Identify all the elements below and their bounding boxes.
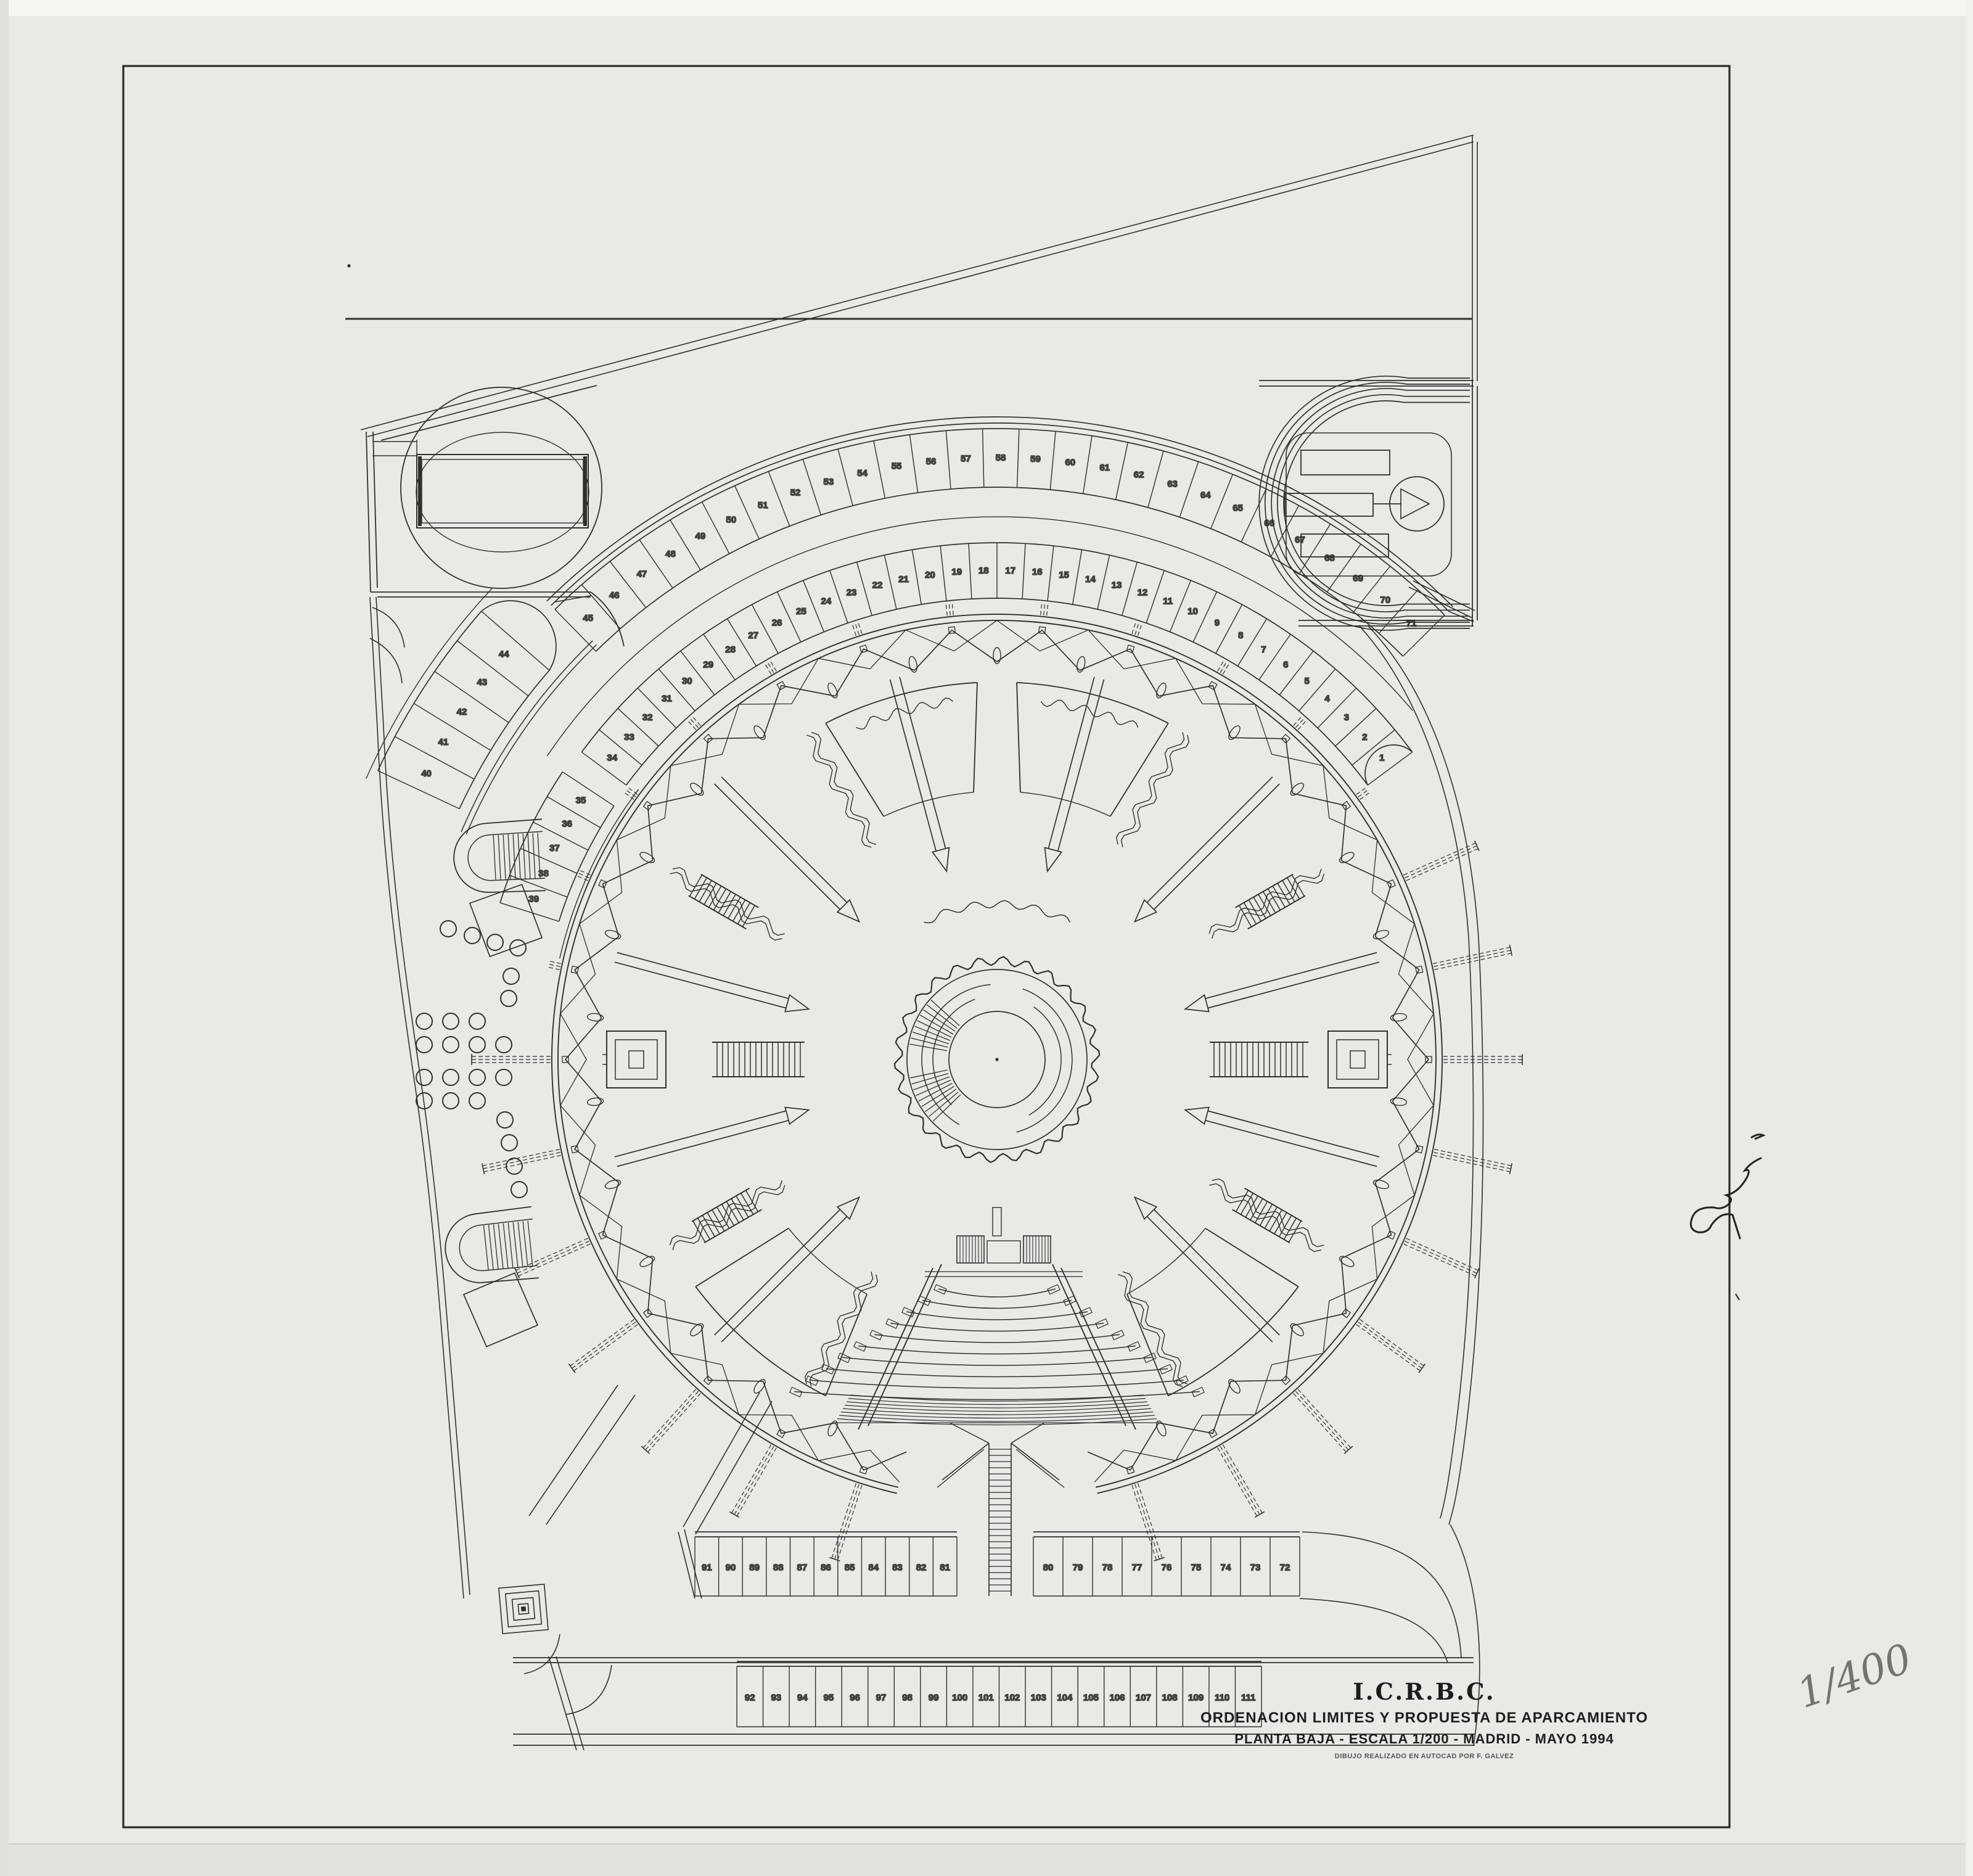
parking-space-number: 19 <box>951 567 962 577</box>
parking-space-number: 88 <box>773 1563 784 1573</box>
parking-space-number: 58 <box>996 453 1006 463</box>
parking-space-number: 11 <box>1163 596 1173 607</box>
parking-space-number: 97 <box>876 1693 887 1703</box>
parking-space-number: 57 <box>961 453 971 464</box>
parking-space-number: 66 <box>1264 518 1274 529</box>
paper-background <box>0 0 1973 1876</box>
parking-space-number: 5 <box>1305 676 1310 686</box>
parking-space-number: 31 <box>662 694 672 704</box>
parking-space-number: 99 <box>929 1693 939 1703</box>
parking-space-number: 22 <box>872 580 883 591</box>
parking-space-number: 26 <box>772 617 782 628</box>
parking-space-number: 51 <box>758 500 768 511</box>
parking-space-number: 7 <box>1261 644 1266 655</box>
parking-space-number: 1 <box>1379 752 1384 763</box>
parking-space-number: 15 <box>1059 570 1069 580</box>
parking-space-number: 10 <box>1187 606 1198 617</box>
parking-space-number: 27 <box>748 630 758 641</box>
parking-space-number: 16 <box>1032 567 1043 577</box>
parking-space-number: 89 <box>749 1563 760 1573</box>
scanned-drawing-sheet: 4546474849505152535455565758596061626364… <box>0 0 1973 1876</box>
parking-space-number: 2 <box>1362 732 1367 743</box>
parking-space-number: 86 <box>821 1563 831 1573</box>
parking-space-number: 8 <box>1238 630 1243 641</box>
parking-space-number: 91 <box>702 1563 712 1573</box>
parking-space-number: 32 <box>642 712 653 723</box>
parking-space-number: 106 <box>1109 1693 1125 1703</box>
parking-space-number: 109 <box>1188 1693 1204 1703</box>
parking-space-number: 83 <box>892 1563 903 1573</box>
parking-space-number: 72 <box>1280 1563 1290 1573</box>
parking-space-number: 17 <box>1005 566 1015 576</box>
parking-space-number: 44 <box>499 649 509 660</box>
parking-space-number: 47 <box>637 569 647 579</box>
parking-space-number: 81 <box>940 1563 950 1573</box>
parking-space-number: 41 <box>438 737 449 747</box>
parking-space-number: 111 <box>1241 1693 1255 1703</box>
parking-space-number: 30 <box>682 676 692 686</box>
paper-edge-left <box>0 0 9 1876</box>
parking-space-number: 92 <box>745 1693 755 1703</box>
parking-space-number: 90 <box>726 1563 736 1573</box>
parking-space-number: 6 <box>1283 660 1288 670</box>
paper-edge-right <box>1966 0 1973 1876</box>
parking-space-number: 50 <box>726 514 737 525</box>
parking-space-number: 38 <box>538 868 549 879</box>
parking-space-number: 70 <box>1380 595 1391 606</box>
parking-space-number: 94 <box>797 1693 808 1703</box>
parking-space-number: 65 <box>1233 503 1243 514</box>
parking-space-number: 12 <box>1138 587 1148 598</box>
parking-space-number: 85 <box>845 1563 855 1573</box>
parking-space-number: 79 <box>1073 1563 1083 1573</box>
parking-space-number: 73 <box>1250 1563 1261 1573</box>
parking-space-number: 52 <box>790 487 801 498</box>
parking-space-number: 55 <box>892 461 902 472</box>
parking-space-number: 56 <box>926 456 937 467</box>
parking-space-number: 76 <box>1162 1563 1172 1573</box>
parking-space-number: 102 <box>1004 1693 1020 1703</box>
parking-space-number: 24 <box>821 596 832 607</box>
patio-center-dot <box>995 1058 998 1061</box>
parking-space-number: 21 <box>898 574 909 585</box>
drawing-title: ORDENACION LIMITES Y PROPUESTA DE APARCA… <box>1200 1709 1648 1726</box>
parking-space-number: 100 <box>952 1693 967 1703</box>
parking-space-number: 98 <box>902 1693 913 1703</box>
parking-space-number: 107 <box>1136 1693 1151 1703</box>
parking-space-number: 40 <box>421 768 432 779</box>
parking-space-number: 45 <box>583 613 593 623</box>
parking-space-number: 25 <box>796 606 806 617</box>
parking-space-number: 29 <box>703 660 713 670</box>
parking-space-number: 104 <box>1057 1693 1073 1703</box>
parking-space-number: 62 <box>1134 470 1144 480</box>
parking-space-number: 42 <box>457 707 467 717</box>
parking-space-number: 34 <box>607 752 617 763</box>
parking-space-number: 63 <box>1167 479 1178 489</box>
drawing-subtitle: PLANTA BAJA - ESCALA 1/200 - MADRID - MA… <box>1234 1731 1614 1746</box>
parking-space-number: 9 <box>1215 617 1220 628</box>
parking-space-number: 28 <box>725 644 736 655</box>
parking-space-number: 61 <box>1099 463 1110 473</box>
parking-space-number: 18 <box>978 566 989 576</box>
paper-edge-bottom <box>0 1844 1973 1876</box>
bottom-lower-row: 9293949596979899100101102103104105106107… <box>737 1661 1261 1727</box>
organization-name: I.C.R.B.C. <box>1353 1678 1495 1705</box>
parking-space-number: 37 <box>549 843 560 854</box>
parking-space-number: 105 <box>1083 1693 1099 1703</box>
parking-space-number: 71 <box>1406 618 1417 628</box>
parking-space-number: 35 <box>576 795 586 805</box>
parking-space-number: 14 <box>1085 574 1096 585</box>
parking-space-number: 96 <box>850 1693 860 1703</box>
parking-space-number: 39 <box>528 894 539 904</box>
parking-space-number: 75 <box>1191 1563 1202 1573</box>
parking-space-number: 80 <box>1043 1563 1054 1573</box>
parking-space-number: 36 <box>562 819 572 829</box>
parking-space-number: 93 <box>771 1693 781 1703</box>
survey-dot <box>347 264 350 267</box>
parking-space-number: 20 <box>925 570 935 580</box>
parking-space-number: 74 <box>1221 1563 1231 1573</box>
parking-space-number: 77 <box>1132 1563 1142 1573</box>
parking-space-number: 59 <box>1030 454 1041 464</box>
parking-space-number: 95 <box>824 1693 834 1703</box>
parking-space-number: 3 <box>1344 712 1349 723</box>
parking-space-number: 64 <box>1200 490 1211 500</box>
parking-space-number: 33 <box>624 732 634 743</box>
parking-space-number: 82 <box>916 1563 927 1573</box>
parking-space-number: 43 <box>477 677 487 688</box>
parking-space-number: 101 <box>978 1693 994 1703</box>
parking-space-number: 13 <box>1112 580 1122 591</box>
parking-space-number: 54 <box>857 468 868 479</box>
parking-space-number: 84 <box>868 1563 879 1573</box>
parking-space-number: 67 <box>1295 535 1305 545</box>
parking-space-number: 60 <box>1065 457 1075 467</box>
south-exit-mask <box>886 1387 1108 1553</box>
parking-space-number: 108 <box>1162 1693 1178 1703</box>
paper-edge-top <box>0 0 1973 16</box>
parking-space-number: 23 <box>847 587 857 598</box>
parking-space-number: 48 <box>665 549 676 559</box>
drawing-credit: DIBUJO REALIZADO EN AUTOCAD POR F. GALVE… <box>1335 1753 1514 1760</box>
parking-space-number: 87 <box>797 1563 808 1573</box>
parking-space-number: 46 <box>609 590 620 601</box>
parking-space-number: 69 <box>1353 573 1363 583</box>
parking-space-number: 53 <box>824 477 834 487</box>
parking-space-number: 110 <box>1215 1693 1229 1703</box>
parking-space-number: 103 <box>1031 1693 1046 1703</box>
parking-space-number: 49 <box>695 531 706 541</box>
parking-space-number: 4 <box>1324 694 1330 704</box>
site-plan-drawing: 4546474849505152535455565758596061626364… <box>0 0 1973 1876</box>
parking-space-number: 68 <box>1324 553 1335 564</box>
parking-space-number: 78 <box>1102 1563 1113 1573</box>
